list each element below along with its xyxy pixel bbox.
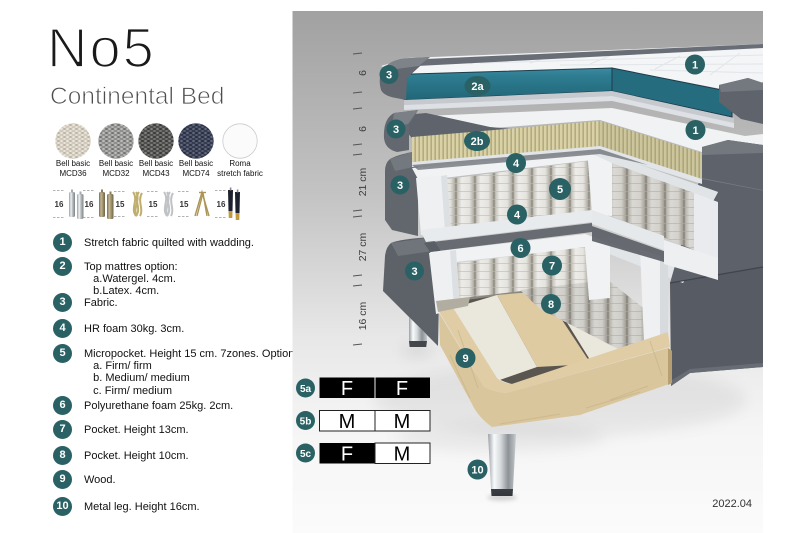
svg-text:M: M bbox=[394, 444, 411, 466]
svg-text:2022.04: 2022.04 bbox=[712, 498, 752, 510]
svg-text:1: 1 bbox=[692, 60, 698, 72]
svg-text:16: 16 bbox=[217, 200, 226, 209]
svg-text:M: M bbox=[394, 411, 411, 433]
svg-text:F: F bbox=[341, 444, 353, 466]
svg-text:1: 1 bbox=[692, 125, 698, 137]
svg-text:15: 15 bbox=[180, 200, 189, 209]
svg-text:7: 7 bbox=[549, 261, 555, 273]
svg-text:4: 4 bbox=[514, 210, 521, 222]
svg-text:4: 4 bbox=[513, 158, 520, 170]
svg-text:6: 6 bbox=[357, 126, 369, 132]
svg-text:27 cm: 27 cm bbox=[357, 232, 369, 261]
svg-text:5a: 5a bbox=[300, 384, 312, 395]
svg-text:2b: 2b bbox=[471, 136, 484, 148]
svg-text:3: 3 bbox=[393, 124, 399, 136]
svg-text:10: 10 bbox=[471, 465, 483, 477]
svg-text:F: F bbox=[341, 378, 353, 400]
svg-text:16: 16 bbox=[85, 200, 94, 209]
svg-text:16 cm: 16 cm bbox=[357, 301, 369, 330]
svg-text:6: 6 bbox=[517, 243, 523, 255]
svg-text:15: 15 bbox=[116, 200, 125, 209]
svg-text:8: 8 bbox=[548, 299, 554, 311]
svg-text:16: 16 bbox=[55, 200, 64, 209]
svg-text:5: 5 bbox=[557, 184, 563, 196]
svg-text:M: M bbox=[339, 411, 356, 433]
svg-text:5b: 5b bbox=[300, 417, 312, 428]
svg-text:15: 15 bbox=[149, 200, 158, 209]
svg-text:21 cm: 21 cm bbox=[357, 167, 369, 196]
svg-text:9: 9 bbox=[462, 353, 468, 365]
svg-text:3: 3 bbox=[386, 70, 392, 82]
svg-text:3: 3 bbox=[411, 266, 417, 278]
svg-text:F: F bbox=[396, 378, 408, 400]
svg-text:2a: 2a bbox=[471, 81, 484, 93]
svg-text:3: 3 bbox=[397, 180, 403, 192]
svg-text:5c: 5c bbox=[300, 449, 312, 460]
svg-text:6: 6 bbox=[357, 70, 369, 76]
